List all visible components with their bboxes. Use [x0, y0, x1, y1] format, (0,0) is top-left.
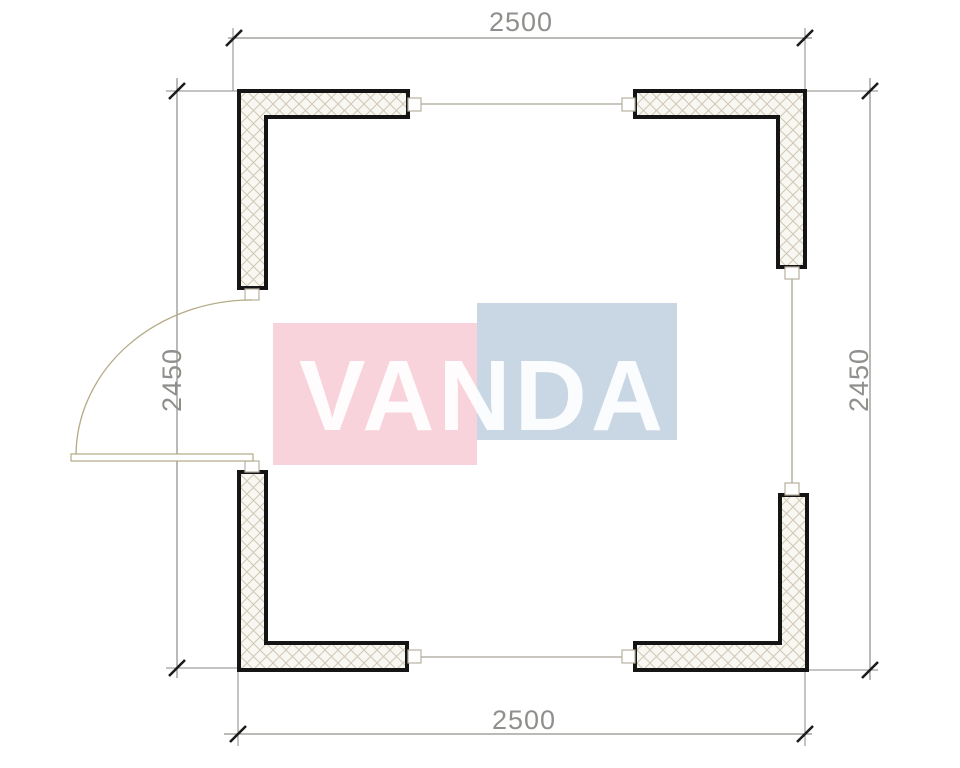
- dimension-label-top: 2500: [489, 7, 553, 37]
- dimension-label-bottom: 2500: [492, 705, 556, 735]
- wall-top-right: [635, 91, 805, 267]
- floor-plan-canvas: 2500 2500 2450 2450: [0, 0, 960, 768]
- wall-bottom-right: [635, 495, 807, 670]
- watermark-logo-text: VANDA: [299, 340, 667, 452]
- jamb-bottom-window-right: [622, 650, 635, 663]
- jamb-door-bottom: [245, 461, 259, 472]
- wall-top-left: [239, 91, 408, 288]
- dimension-label-right: 2450: [844, 348, 874, 412]
- jamb-door-top: [245, 289, 259, 300]
- watermark: VANDA: [273, 303, 677, 465]
- jamb-top-window-left: [408, 98, 421, 111]
- jamb-right-window-top: [785, 267, 799, 279]
- floor-plan-page: 2500 2500 2450 2450: [0, 0, 960, 768]
- jamb-bottom-window-left: [408, 650, 421, 663]
- dimension-label-left: 2450: [157, 348, 187, 412]
- jamb-top-window-right: [622, 98, 635, 111]
- jamb-right-window-bottom: [785, 483, 799, 495]
- wall-bottom-left: [239, 472, 407, 670]
- door-leaf: [71, 454, 253, 461]
